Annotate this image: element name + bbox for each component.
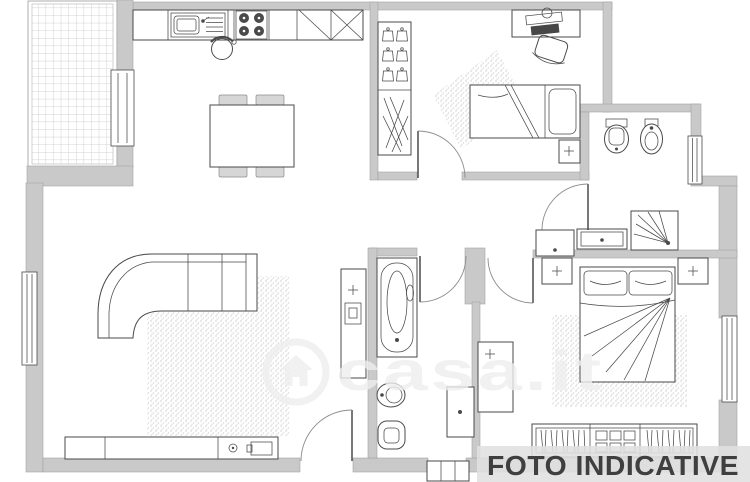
stove-burners (236, 11, 267, 39)
bathroom2-door (420, 256, 466, 302)
shower (631, 211, 678, 250)
terrace (28, 1, 117, 167)
desk (512, 8, 580, 37)
entrance-door (301, 410, 352, 461)
bedroom1-nightstand (559, 140, 580, 163)
terrace-door-window (111, 70, 134, 146)
watermark-text: casa.it (336, 339, 604, 402)
bidet (641, 119, 663, 154)
photo-indicative-banner: FOTO INDICATIVE (477, 446, 750, 482)
master-window (722, 316, 737, 402)
dining-table (210, 105, 294, 167)
entrance-steps (427, 461, 469, 481)
toilet (605, 119, 629, 153)
kitchen-counter (133, 10, 363, 40)
bathroom1-door (542, 184, 588, 230)
bathroom1-window (688, 136, 702, 184)
floor-plan-svg: casa.it FOTO INDICATIVE (0, 0, 750, 482)
bedroom1-wardrobe (378, 22, 411, 155)
hall-cabinet (536, 230, 574, 256)
single-bed (470, 85, 580, 138)
master-door (488, 258, 533, 303)
vanity-cabinet (577, 229, 627, 249)
living-window (22, 272, 37, 365)
kitchen-sink (171, 13, 225, 37)
banner-text: FOTO INDICATIVE (487, 450, 739, 481)
floor-plan-image: casa.it FOTO INDICATIVE (0, 0, 750, 482)
toilet (378, 421, 405, 449)
tv-sideboard (65, 437, 278, 459)
watermark: casa.it (266, 339, 604, 402)
desk-chair (531, 33, 571, 67)
master-nightstand-right (678, 258, 708, 284)
master-nightstand-left (542, 258, 572, 284)
dining-set (210, 95, 294, 177)
